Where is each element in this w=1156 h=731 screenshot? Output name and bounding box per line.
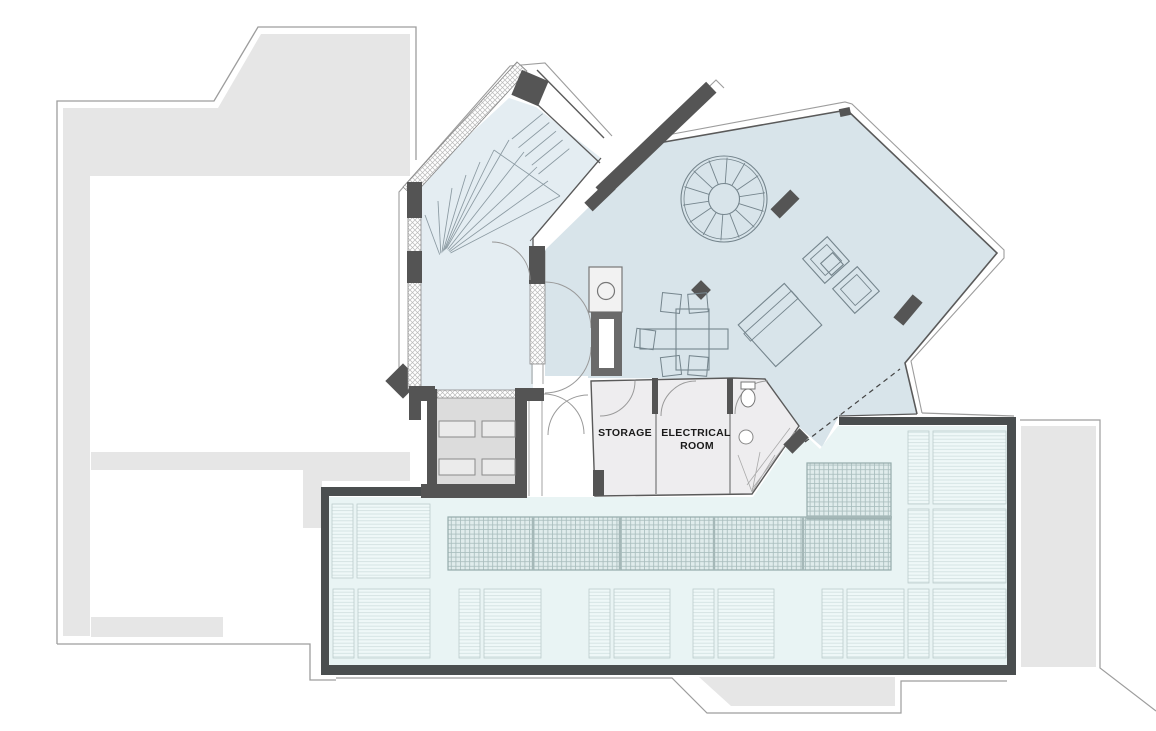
svg-text:STORAGE: STORAGE bbox=[598, 427, 652, 439]
svg-text:ROOM: ROOM bbox=[680, 440, 714, 452]
svg-text:ELECTRICAL: ELECTRICAL bbox=[661, 427, 731, 439]
